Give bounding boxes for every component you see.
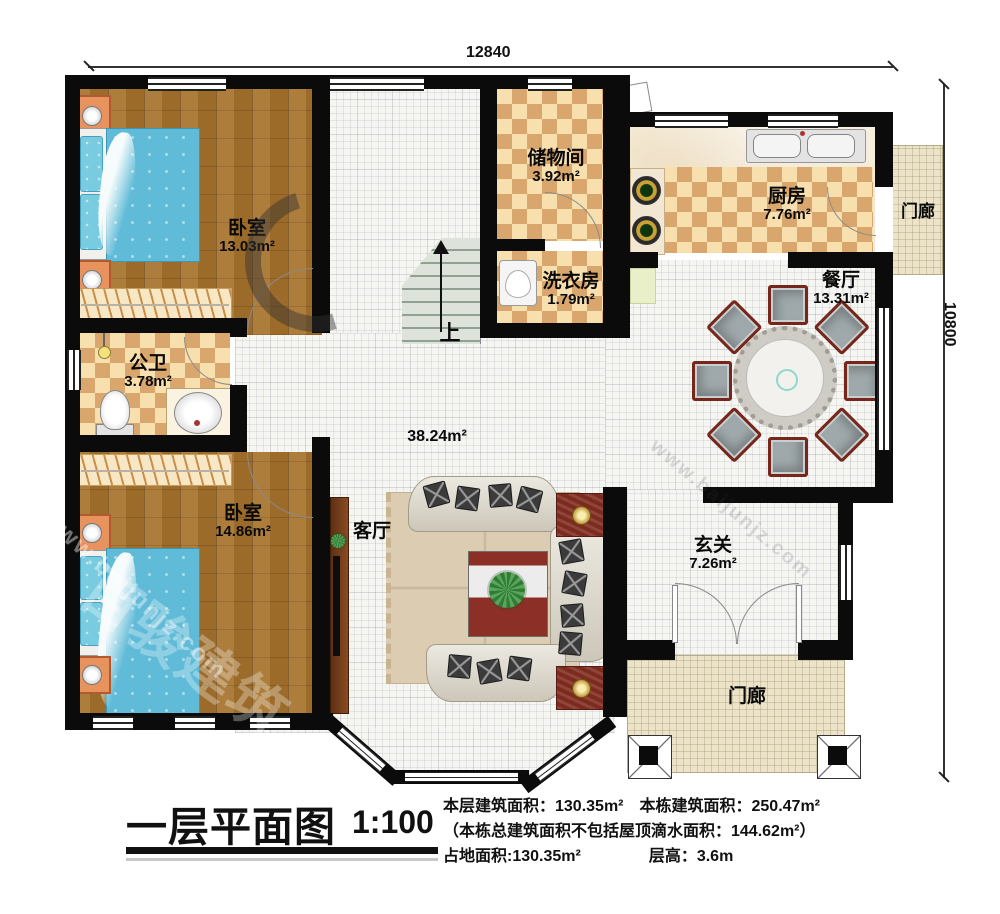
floor-plan-canvas: 12840 10800 [0,0,1000,914]
kitchen-sink-basin [753,134,801,158]
dining-chair [768,437,808,477]
room-label-dining: 餐厅 13.31m² [813,270,869,308]
plan-title: 一层平面图 [126,793,336,853]
window [528,77,572,91]
sofa-pillow [455,486,481,512]
tv [333,556,340,656]
wardrobe [78,454,232,486]
stairs-up-label: 上 [440,322,461,346]
room-area: 13.31m² [813,291,869,308]
wall [703,487,893,503]
room-name: 门廊 [901,202,935,221]
room-name: 客厅 [353,521,391,542]
kitchen-doormat [630,268,656,304]
stats-line2: （本栋总建筑面积不包括屋顶滴水面积：144.62m²） [443,819,820,844]
room-label-bedroom1: 卧室 13.03m² [219,218,275,256]
room-name: 玄关 [689,535,737,556]
window [175,716,215,730]
room-label-porch-bottom: 门廊 [728,686,766,707]
room-name: 公卫 [124,353,172,374]
wall [497,239,545,251]
dining-chair [768,285,808,325]
window [877,308,891,450]
room-area: 14.86m² [215,524,271,541]
porch-column [628,735,672,779]
stats-line1: 本层建筑面积：130.35m²本栋建筑面积：250.47m² [443,794,820,819]
kitchen-faucet [800,131,805,136]
sofa-pillow [507,656,533,682]
door-leaf [672,585,678,643]
room-name: 洗衣房 [542,271,599,292]
stat-footprint: 占地面积:130.35m² [443,848,581,865]
title-underline [126,847,438,854]
dining-chair [692,361,732,401]
room-name: 门廊 [728,686,766,707]
stats-line3: 占地面积:130.35m²层高：3.6m [443,844,820,869]
room-area: 3.92m² [527,169,584,186]
stat-building-area: 本栋建筑面积：250.47m² [640,798,821,815]
window [330,77,424,91]
bay-wall [394,770,529,784]
window [768,114,838,128]
kitchen-sink-basin [807,134,855,158]
room-area: 7.76m² [763,207,811,224]
plan-stats: 本层建筑面积：130.35m²本栋建筑面积：250.47m² （本栋总建筑面积不… [443,794,820,869]
wall [65,435,247,452]
window [250,716,290,730]
room-label-porch-right: 门廊 [901,202,935,221]
sofa-pillow [558,538,585,565]
room-label-bedroom2: 卧室 14.86m² [215,503,271,541]
bed-pillow [80,556,103,600]
pendant-cord [103,333,105,347]
wall [480,89,497,338]
wall [627,640,675,660]
window [67,350,81,390]
wall [230,318,247,337]
window [839,545,853,600]
room-area: 3.78m² [124,374,172,391]
wall [603,89,630,338]
title-underline-shadow [126,858,438,861]
room-label-storage: 储物间 3.92m² [527,148,584,186]
side-table [556,493,606,537]
room-label-bathroom: 公卫 3.78m² [124,353,172,391]
stat-total-note: （本栋总建筑面积不包括屋顶滴水面积：144.62m²） [443,823,816,840]
wall [65,75,80,730]
bay-window [405,772,518,782]
sofa-pillow [560,603,585,628]
room-label-kitchen: 厨房 7.76m² [763,186,811,224]
dimension-height-label: 10800 [940,302,958,347]
room-area: 1.79m² [542,292,599,309]
room-label-entry: 玄关 7.26m² [689,535,737,573]
pendant-lamp [98,346,111,359]
window [655,114,728,128]
room-label-living: 客厅 [353,521,391,542]
dimension-width-label: 12840 [466,44,511,62]
wall [230,385,247,452]
window [93,716,133,730]
room-name: 餐厅 [813,270,869,291]
stove-burner [632,176,661,205]
sink-faucet [194,420,200,426]
window [148,77,226,91]
stove-burner [632,216,661,245]
stat-floor-area: 本层建筑面积：130.35m² [443,798,624,815]
plant-small [331,534,345,548]
stairs-arrow [440,252,442,332]
room-area: 13.03m² [219,239,275,256]
wall [312,437,330,730]
sofa-pillow [558,631,583,656]
room-name: 厨房 [763,186,811,207]
wardrobe [78,288,232,320]
door-opening [875,187,893,252]
room-name: 卧室 [215,503,271,524]
stat-floor-height: 层高：3.6m [649,848,733,865]
room-name: 卧室 [219,218,275,239]
wall [312,75,330,333]
room-area: 38.24m² [407,428,467,446]
dimension-line-top [88,66,893,68]
room-label-laundry: 洗衣房 1.79m² [542,271,599,309]
porch-column [817,735,861,779]
plan-scale: 1:100 [352,804,434,841]
washing-machine-drum [505,270,531,298]
dining-table-center [776,369,798,391]
stairs-arrow-head [433,240,449,254]
room-name: 储物间 [527,148,584,169]
sofa-pillow [476,658,503,685]
side-table [556,666,606,710]
bathroom-sink [174,392,222,434]
sofa-pillow [447,654,472,679]
door-leaf [796,585,802,643]
wall [65,318,247,333]
wall [603,487,627,717]
toilet-bowl [100,390,130,430]
sofa-pillow [561,570,588,597]
dimension-line-right [943,84,945,778]
bed-pillow [80,136,103,192]
room-area: 7.26m² [689,556,737,573]
hall-area-label: 38.24m² [407,428,467,446]
plant [489,572,525,608]
sofa-pillow [488,483,513,508]
